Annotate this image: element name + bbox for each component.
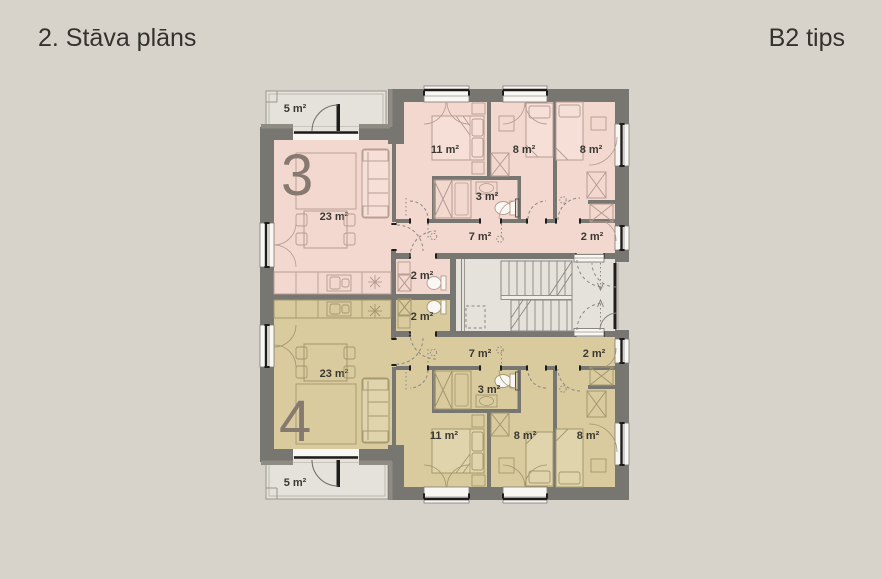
svg-text:8 m²: 8 m² [514,430,537,442]
svg-text:5 m²: 5 m² [284,103,307,115]
svg-text:8 m²: 8 m² [580,144,603,156]
svg-text:2 m²: 2 m² [411,270,434,282]
svg-text:2 m²: 2 m² [411,311,434,323]
svg-text:B2 tips: B2 tips [769,24,845,52]
svg-text:7 m²: 7 m² [469,348,492,360]
svg-text:7 m²: 7 m² [469,231,492,243]
svg-text:2 m²: 2 m² [581,231,604,243]
svg-text:11 m²: 11 m² [431,144,459,156]
svg-text:2. Stāva plāns: 2. Stāva plāns [38,24,196,52]
svg-text:3 m²: 3 m² [476,191,499,203]
svg-text:8 m²: 8 m² [513,144,536,156]
svg-text:3: 3 [281,143,313,208]
svg-text:5 m²: 5 m² [284,477,307,489]
svg-text:3 m²: 3 m² [478,384,501,396]
svg-text:2 m²: 2 m² [583,348,606,360]
svg-text:4: 4 [279,389,311,454]
svg-text:11 m²: 11 m² [430,430,458,442]
svg-text:8 m²: 8 m² [577,430,600,442]
